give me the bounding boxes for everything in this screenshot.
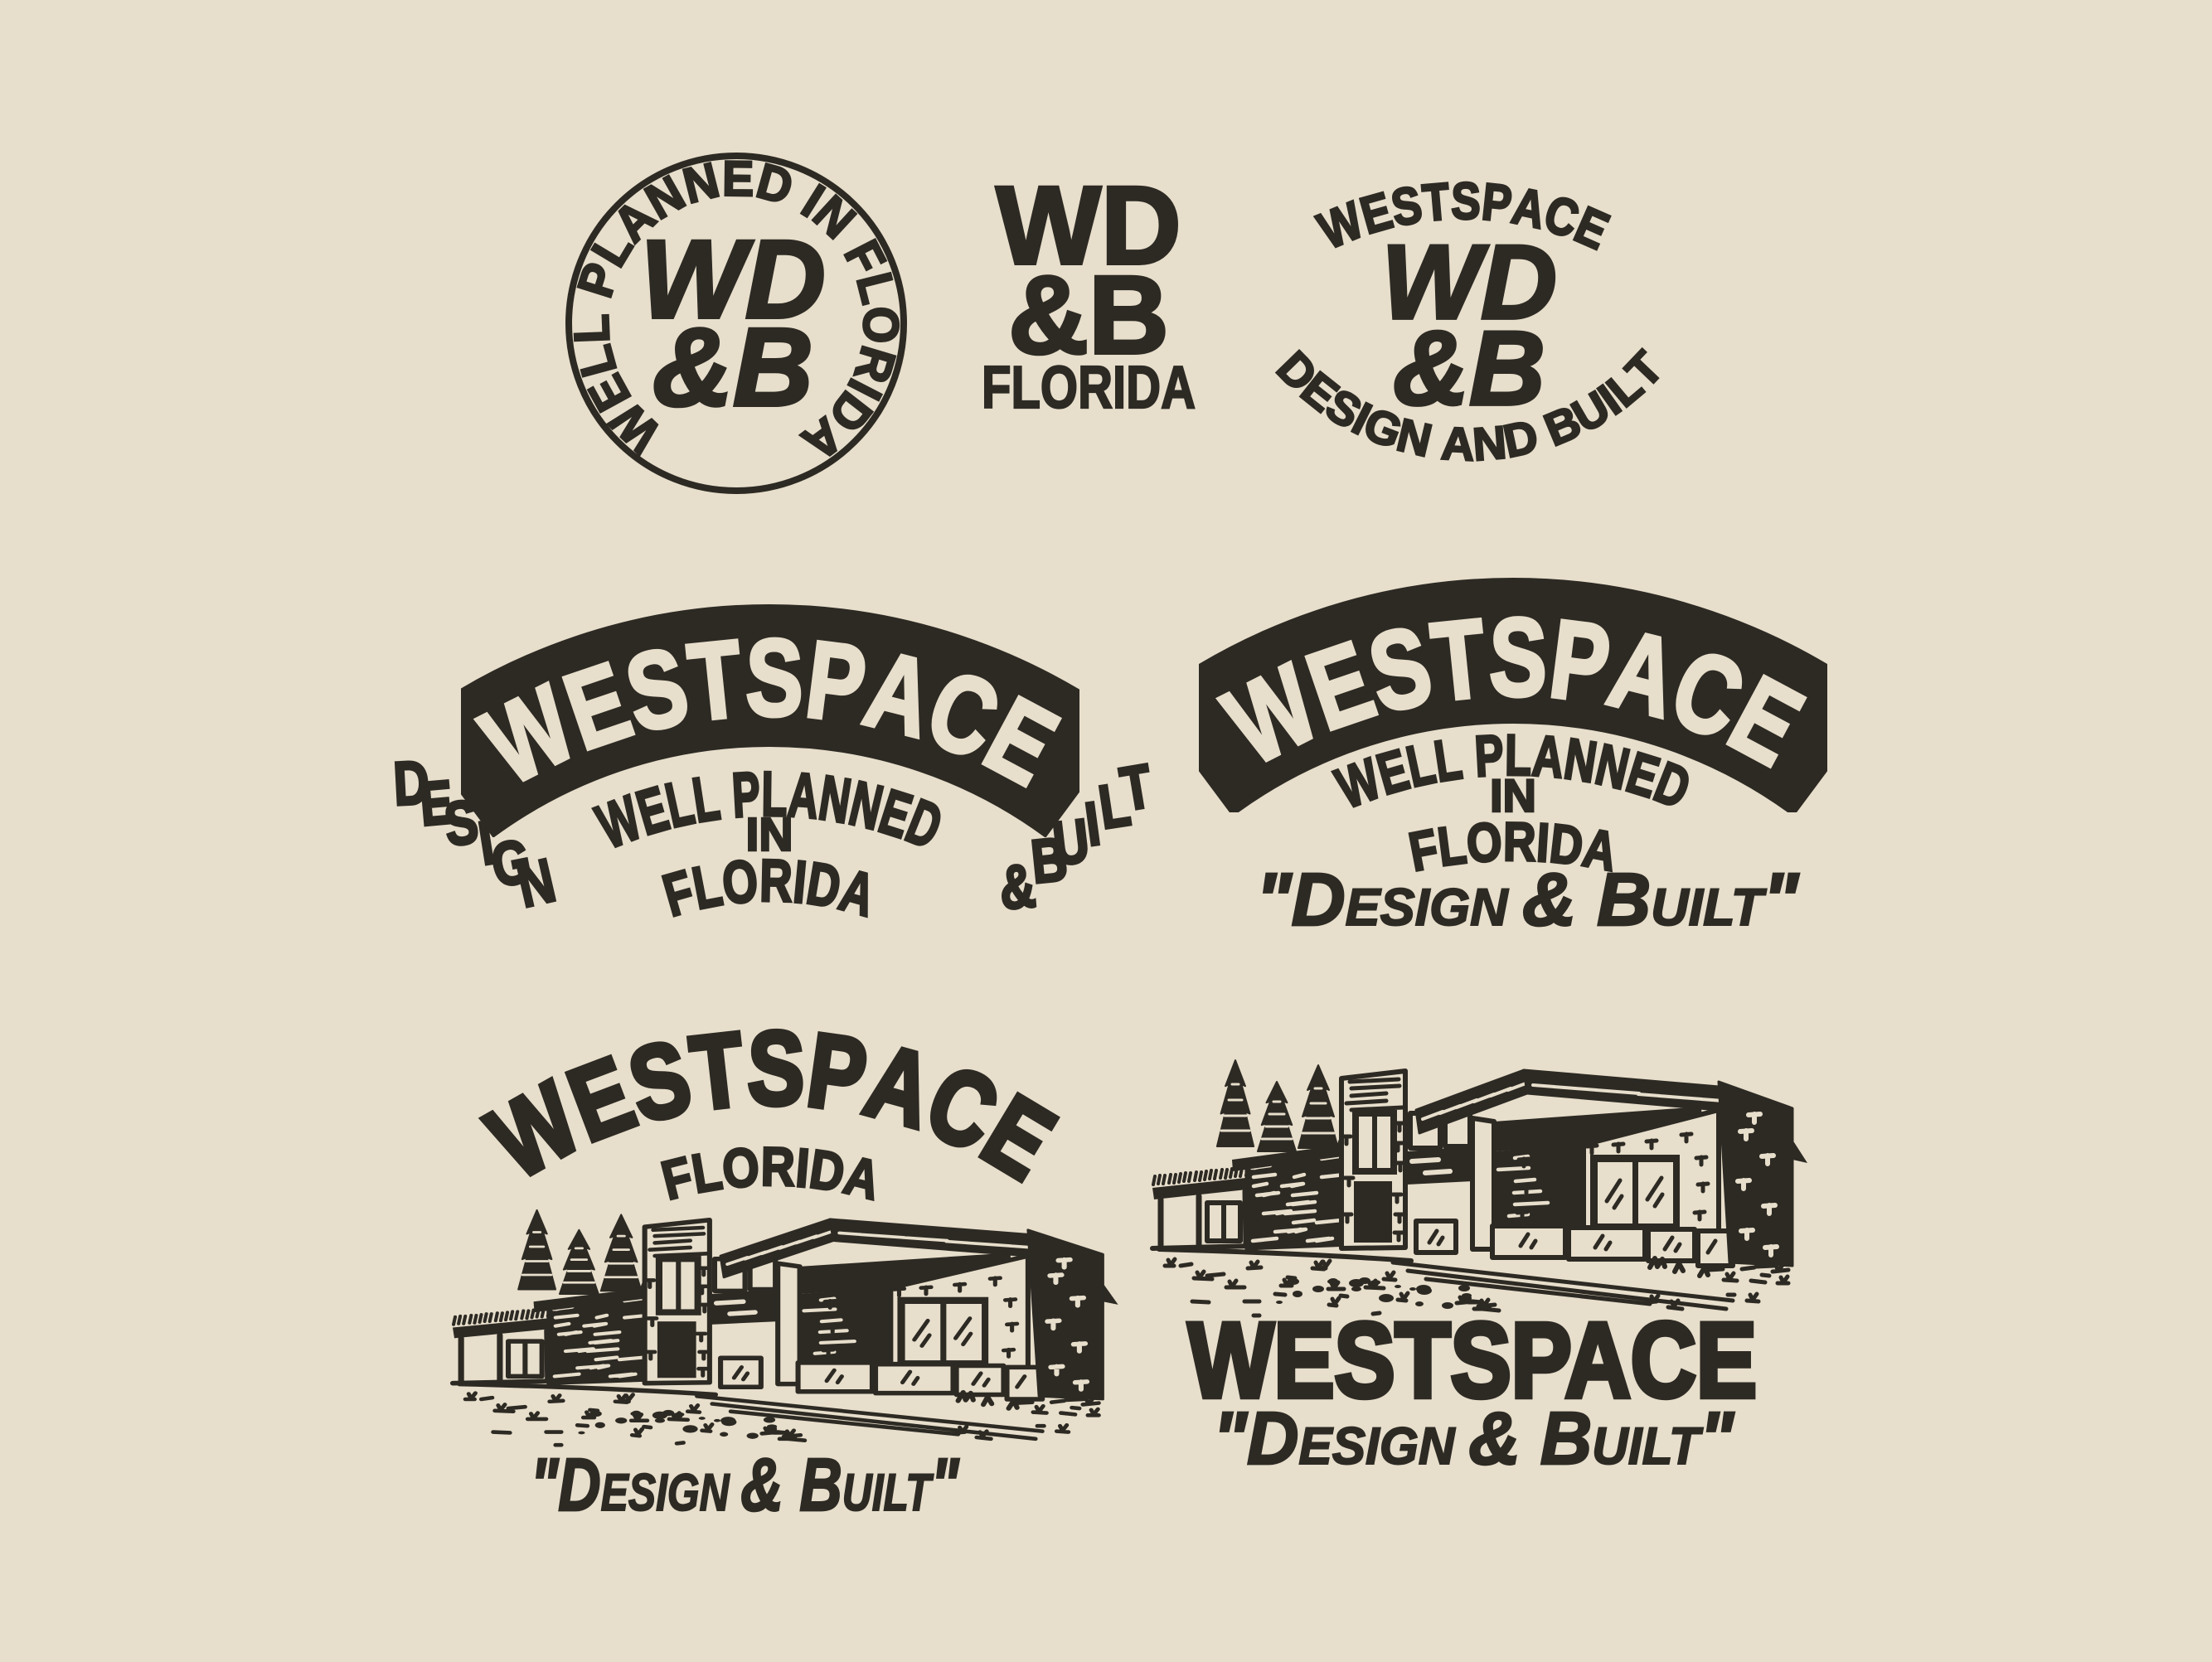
svg-text:S: S [1489,595,1548,720]
svg-text:UILT: UILT [1651,879,1767,937]
svg-text:UILT: UILT [1592,1417,1704,1475]
svg-text:ESIGN: ESIGN [1346,879,1510,937]
svg-text:E: E [722,152,754,207]
svg-text:B: B [1597,859,1651,942]
svg-text:O: O [720,1136,762,1200]
svg-text:"D: "D [1213,1396,1298,1480]
svg-text:&: & [1468,1396,1520,1480]
svg-text:S: S [1451,172,1481,231]
svg-text:S: S [747,1010,805,1127]
svg-text:S: S [745,618,803,739]
svg-text:": " [1763,859,1799,942]
svg-text:D: D [751,153,799,216]
svg-text:"D: "D [531,1444,601,1527]
svg-text:O: O [1465,811,1504,875]
svg-text:&B: &B [1393,309,1545,427]
svg-text:R: R [759,846,793,914]
svg-text:&: & [1522,859,1576,942]
svg-text:R: R [760,1136,795,1199]
svg-text:FLORIDA: FLORIDA [982,355,1196,421]
svg-text:O: O [720,846,760,917]
svg-text:&B: &B [652,306,813,429]
svg-text:B: B [799,1444,842,1527]
svg-text:": " [1700,1396,1734,1480]
svg-text:"D: "D [1256,859,1346,942]
svg-text:O: O [852,306,908,343]
svg-text:L: L [564,313,620,344]
svg-text:B: B [1540,1396,1592,1480]
svg-text:ESIGN: ESIGN [1298,1417,1456,1475]
svg-text:&: & [740,1444,783,1527]
svg-text:ESIGN: ESIGN [601,1465,730,1523]
svg-text:N: N [512,846,561,921]
svg-text:UILT: UILT [842,1465,934,1523]
svg-text:": " [931,1444,960,1527]
